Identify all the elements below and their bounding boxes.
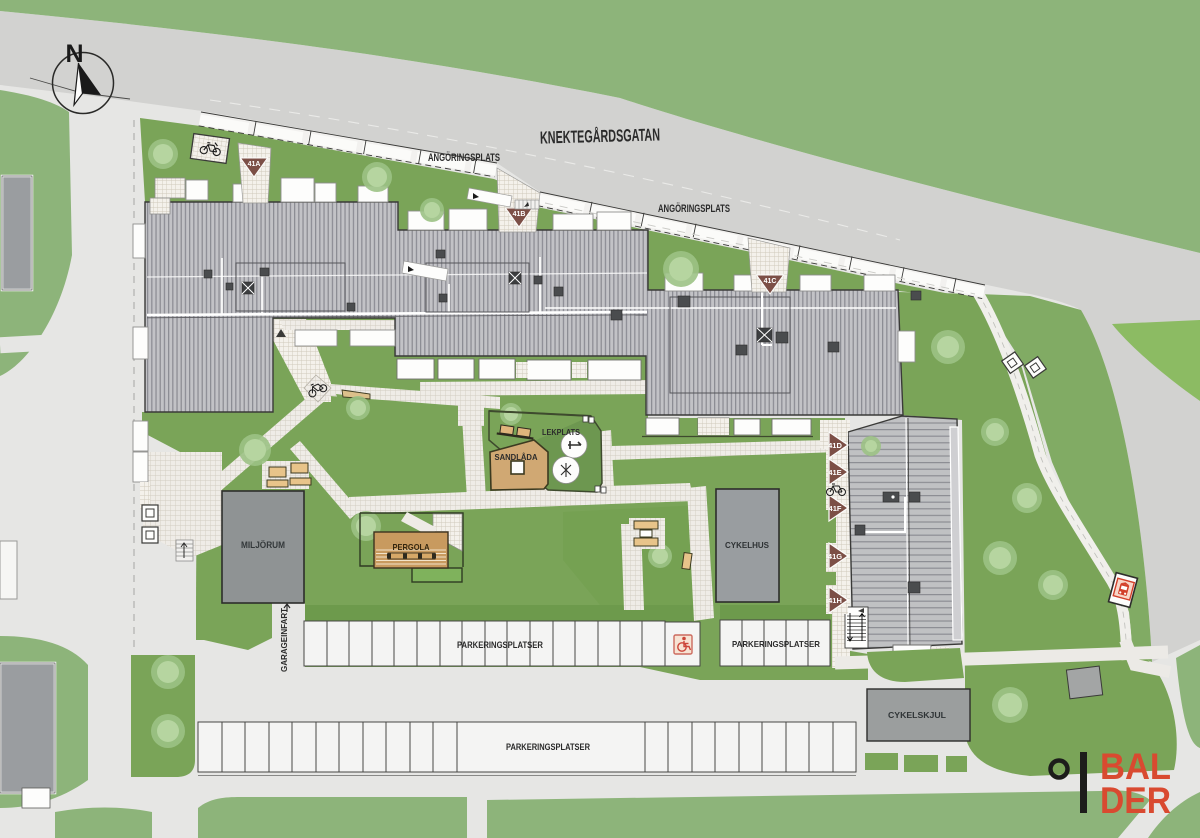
svg-text:41D: 41D — [828, 441, 842, 450]
svg-text:ANGÖRINGSPLATS: ANGÖRINGSPLATS — [428, 151, 500, 164]
svg-text:DER: DER — [1100, 780, 1171, 821]
svg-text:PERGOLA: PERGOLA — [393, 542, 430, 552]
svg-text:PARKERINGSPLATSER: PARKERINGSPLATSER — [732, 639, 820, 649]
svg-text:CYKELHUS: CYKELHUS — [725, 540, 769, 550]
svg-text:41G: 41G — [828, 552, 842, 561]
svg-text:CYKELSKJUL: CYKELSKJUL — [888, 710, 946, 720]
svg-text:PARKERINGSPLATSER: PARKERINGSPLATSER — [506, 742, 590, 752]
svg-text:SANDLÅDA: SANDLÅDA — [495, 453, 538, 462]
svg-text:41F: 41F — [829, 504, 842, 513]
svg-text:GARAGEINFART: GARAGEINFART — [279, 607, 289, 672]
svg-text:PARKERINGSPLATSER: PARKERINGSPLATSER — [457, 640, 543, 650]
svg-text:41E: 41E — [828, 468, 841, 477]
svg-text:N: N — [65, 40, 83, 68]
svg-text:41A: 41A — [248, 161, 261, 168]
svg-text:ANGÖRINGSPLATS: ANGÖRINGSPLATS — [658, 202, 730, 215]
svg-text:41B: 41B — [513, 211, 526, 218]
svg-text:LEKPLATS: LEKPLATS — [542, 428, 581, 437]
svg-text:41C: 41C — [764, 278, 777, 285]
svg-text:MILJÖRUM: MILJÖRUM — [241, 540, 285, 550]
svg-text:KNEKTEGÅRDSGATAN: KNEKTEGÅRDSGATAN — [540, 124, 660, 147]
svg-text:41H: 41H — [828, 596, 842, 605]
